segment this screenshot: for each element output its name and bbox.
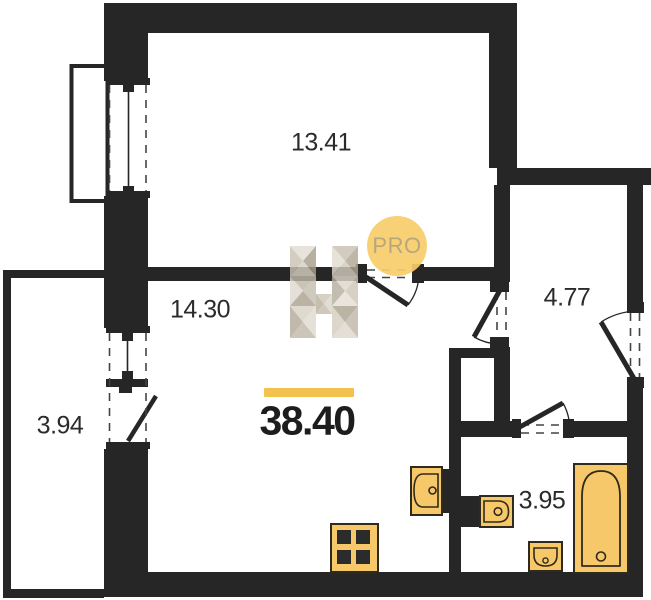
wall-right-lower [627,385,643,597]
area-label-bathroom: 3.95 [519,489,566,514]
window-upper-left [106,78,150,198]
h-logo-facets [290,246,358,338]
wall-interior-right [423,267,494,281]
area-label-balcony: 3.94 [37,414,84,439]
wall-right-upper [627,185,643,303]
stove [331,524,378,578]
pro-badge-label: PRO [372,233,421,259]
area-label-hallway: 4.77 [544,286,591,311]
wall-left-upper [104,3,148,81]
wall-bath-top-left [449,421,512,437]
burner [337,550,351,564]
area-label-room-kitchen: 14.30 [170,298,230,323]
h-facet-logo-watermark [288,246,360,338]
wall-hall-top [497,168,651,185]
burner [356,550,370,564]
total-area-underline [264,388,354,397]
burner [356,530,370,544]
floor-plan-canvas: PRO 13.41 14.30 3.94 4.77 3.95 38.40 [0,0,651,600]
balcony-door-leaf [128,396,156,441]
wall-top [104,3,517,33]
balcony-window-door [106,326,156,449]
washbasin [529,542,562,577]
wall-balcony-top [3,270,104,278]
door-swing-arc [563,403,569,420]
wall-balcony-bottom [3,589,104,598]
area-label-room-top: 13.41 [291,131,351,156]
wall-left-middle [104,196,148,328]
door-leaf [474,290,500,337]
pro-badge: PRO [367,216,427,276]
upper-balcony-outline [72,66,108,201]
total-area-label: 38.40 [259,401,354,442]
kitchen-sink [411,467,450,515]
wall-mid-vertical-upper [494,185,510,282]
wall-ne-vertical [489,33,517,168]
wall-kitchen-bath [449,348,461,597]
door-bathroom [512,403,574,438]
bathtub [574,464,628,573]
toilet [461,496,513,527]
wall-bath-top-right [573,421,643,437]
door-room-to-hallway [474,281,509,348]
door-entrance [601,302,644,388]
wall-balcony-left [3,270,11,598]
burner [337,530,351,544]
door-leaf [366,277,408,305]
wall-closet-top [449,348,510,358]
